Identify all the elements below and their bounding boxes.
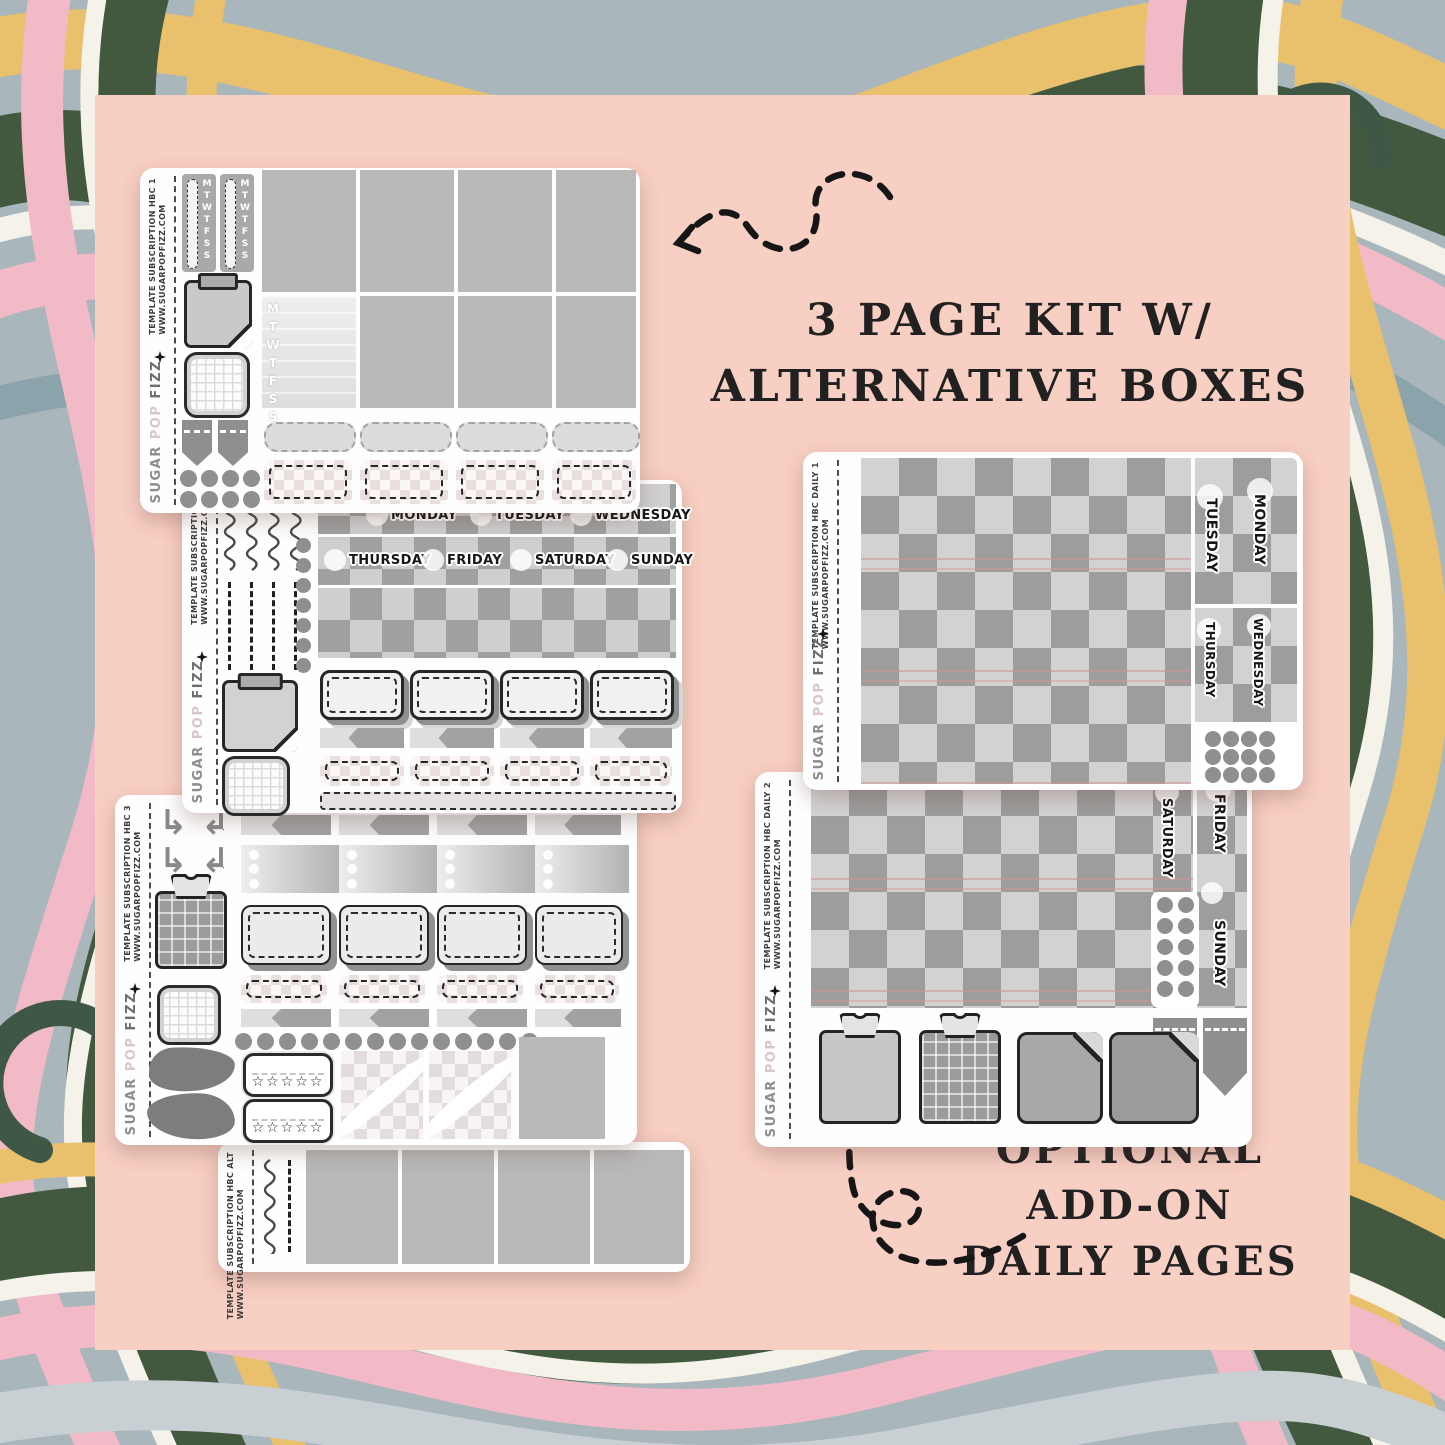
- chevron-banner-sticker: [437, 1009, 527, 1027]
- sticker-sheet-kit-page-3: TEMPLATE SUBSCRIPTION HBC 3 WWW.SUGARPOP…: [115, 795, 637, 1145]
- full-box-sticker: [360, 170, 454, 292]
- strip-capsule: [187, 179, 198, 269]
- chevron-banner-sticker: [410, 728, 494, 748]
- journal-box-sticker: [339, 905, 429, 965]
- pennant-flag-sticker: [218, 420, 248, 466]
- chevron-banner-sticker: [339, 815, 429, 835]
- circle-sticker: [1201, 882, 1223, 904]
- journal-box-sticker: [320, 670, 404, 720]
- day-label-sunday: SUNDAY: [1211, 920, 1227, 987]
- checker-capsule-sticker: [552, 460, 636, 504]
- dot-stickers: [296, 538, 311, 673]
- sticker-sheet-daily-1: TEMPLATE SUBSCRIPTION HBC DAILY 1 WWW.SU…: [803, 452, 1303, 790]
- checker-capsule-sticker: [241, 975, 327, 1003]
- full-box-sticker: [519, 1037, 605, 1139]
- dot-stickers: [180, 470, 260, 508]
- sticky-note-icon: [184, 280, 252, 348]
- chevron-banner-sticker: [535, 815, 621, 835]
- squiggle-line-sticker: [260, 1158, 280, 1254]
- folded-note-icon: [1017, 1032, 1103, 1124]
- checker-capsule-sticker: [456, 460, 544, 504]
- grid-note-icon: [157, 985, 221, 1045]
- torn-paper-sticker: [341, 1051, 423, 1139]
- full-box-sticker: [402, 1150, 494, 1264]
- product-listing-image: TEMPLATE SUBSCRIPTION HBC 1 WWW.SUGARPOP…: [0, 0, 1445, 1445]
- clipboard-icon: [155, 891, 227, 969]
- day-label-wednesday: WEDNESDAY: [1251, 618, 1265, 707]
- label-capsule-sticker: [456, 422, 548, 452]
- day-label-friday: FRIDAY: [447, 553, 502, 568]
- pennant-flag-sticker: [182, 420, 212, 466]
- dot-panel: [1197, 728, 1297, 784]
- dot-stickers: [1157, 897, 1194, 997]
- checker-capsule-sticker: [590, 756, 672, 786]
- dotted-header-sticker: [535, 845, 629, 893]
- strip-capsule: [225, 179, 236, 269]
- dashed-line-sticker: [272, 582, 275, 670]
- sticky-note-icon: [222, 680, 298, 752]
- day-label-thursday: THURSDAY: [1203, 622, 1217, 698]
- sticker-sheet-kit-page-1: TEMPLATE SUBSCRIPTION HBC 1 WWW.SUGARPOP…: [140, 168, 640, 513]
- checker-capsule-sticker: [264, 460, 352, 504]
- grid-note-icon: [184, 352, 250, 418]
- weekday-letters: MTWTFSS: [240, 179, 249, 267]
- washi-swatch-sticker: [146, 1091, 236, 1140]
- clipboard-icon: [919, 1030, 1001, 1124]
- chevron-banner-sticker: [241, 1009, 331, 1027]
- star-row: ☆☆☆☆☆: [246, 1074, 330, 1090]
- full-box-sticker: [556, 170, 636, 292]
- full-box-sticker: [556, 296, 636, 408]
- day-label-monday: MONDAY: [1251, 494, 1267, 565]
- weekday-strip-sticker: MTWTFSS: [182, 174, 216, 272]
- pennant-flag-sticker: [1203, 1018, 1247, 1096]
- torn-paper-sticker: [429, 1051, 511, 1139]
- chevron-banner-sticker: [437, 815, 527, 835]
- journal-box-sticker: [410, 670, 494, 720]
- dashed-line-sticker: [288, 1160, 291, 1252]
- circle-sticker: [510, 549, 532, 571]
- checker-capsule-sticker: [360, 460, 448, 504]
- chevron-banner-sticker: [339, 1009, 429, 1027]
- washi-swatch-sticker: [148, 1046, 235, 1093]
- kit-annotation-line2: ALTERNATIVE BOXES: [700, 354, 1320, 420]
- dashed-line-sticker: [228, 582, 231, 670]
- binder-clip-icon: [170, 874, 212, 899]
- day-label-friday: FRIDAY: [1211, 794, 1227, 853]
- dot-stickers: [235, 1033, 538, 1050]
- dotted-header-sticker: [241, 845, 339, 893]
- journal-box-sticker: [500, 670, 584, 720]
- dot-stickers: [1205, 731, 1275, 783]
- day-label-saturday: SATURDAY: [1159, 798, 1174, 878]
- dotted-header-sticker: [339, 845, 437, 893]
- grid-note-icon: [222, 756, 290, 816]
- binder-clip-icon: [939, 1013, 981, 1038]
- full-box-sticker: [360, 296, 454, 408]
- dashed-arrow-to-kit: [660, 165, 900, 305]
- checker-capsule-sticker: [437, 975, 523, 1003]
- checker-capsule-sticker: [500, 756, 584, 786]
- sticker-sheet-alt-boxes: TEMPLATE SUBSCRIPTION HBC ALT WWW.SUGARP…: [218, 1142, 690, 1272]
- chevron-banner-sticker: [535, 1009, 621, 1027]
- sticker-sheet-daily-2: TEMPLATE SUBSCRIPTION HBC DAILY 2 WWW.SU…: [755, 772, 1252, 1147]
- day-label-tuesday: TUESDAY: [1203, 498, 1219, 573]
- label-capsule-sticker: [552, 422, 640, 452]
- clipboard-icon: [819, 1030, 901, 1124]
- chevron-banner-sticker: [590, 728, 672, 748]
- journal-box-sticker: [590, 670, 674, 720]
- weekday-letters: MTWTFSS: [267, 302, 279, 428]
- full-box-sticker: [498, 1150, 590, 1264]
- chevron-banner-sticker: [320, 728, 404, 748]
- day-label-thursday: THURSDAY: [349, 553, 431, 568]
- label-capsule-sticker: [360, 422, 452, 452]
- circle-sticker: [422, 549, 444, 571]
- full-box-sticker: [458, 170, 552, 292]
- daily-page-sticker: [861, 458, 1191, 784]
- dot-panel: [1151, 892, 1199, 1008]
- journal-box-sticker: [437, 905, 527, 965]
- star-rating-sticker: ☆☆☆☆☆: [243, 1053, 333, 1097]
- kit-annotation: 3 PAGE KIT W/ ALTERNATIVE BOXES: [700, 288, 1320, 420]
- weekday-strip-sticker: MTWTFSS: [220, 174, 254, 272]
- full-box-sticker: [306, 1150, 398, 1264]
- chevron-banner-sticker: [241, 815, 331, 835]
- journal-box-sticker: [241, 905, 331, 965]
- label-capsule-sticker: [264, 422, 356, 452]
- checker-capsule-sticker: [339, 975, 425, 1003]
- dashed-line-sticker: [250, 582, 253, 670]
- binder-clip-icon: [839, 1013, 881, 1038]
- circle-sticker: [324, 549, 346, 571]
- star-rating-sticker: ☆☆☆☆☆: [243, 1099, 333, 1143]
- checker-capsule-sticker: [535, 975, 619, 1003]
- daily-page-sticker: [811, 778, 1193, 1008]
- circle-sticker: [606, 549, 628, 571]
- checker-capsule-sticker: [320, 756, 404, 786]
- sticker-sheet-kit-page-2: TEMPLATE SUBSCRIPTION H WWW.SUGARPOPFIZZ…: [182, 480, 682, 813]
- full-box-sticker: [594, 1150, 684, 1264]
- full-box-sticker: [458, 296, 552, 408]
- dotted-header-sticker: [437, 845, 535, 893]
- chevron-banner-sticker: [500, 728, 584, 748]
- day-tab-block: THURSDAY WEDNESDAY: [1195, 608, 1297, 722]
- weekday-letters: MTWTFSS: [202, 179, 211, 267]
- folded-note-icon: [1109, 1032, 1199, 1124]
- star-row: ☆☆☆☆☆: [246, 1120, 330, 1136]
- day-label-sunday: SUNDAY: [631, 553, 693, 568]
- checker-capsule-sticker: [410, 756, 494, 786]
- day-tab-block: TUESDAY MONDAY: [1195, 458, 1297, 604]
- day-label-saturday: SATURDAY: [535, 553, 615, 568]
- journal-box-sticker: [535, 905, 623, 965]
- weekly-sidebar-sticker: MTWTFSS: [262, 296, 356, 408]
- full-box-sticker: [262, 170, 356, 292]
- long-strip-sticker: [320, 792, 676, 810]
